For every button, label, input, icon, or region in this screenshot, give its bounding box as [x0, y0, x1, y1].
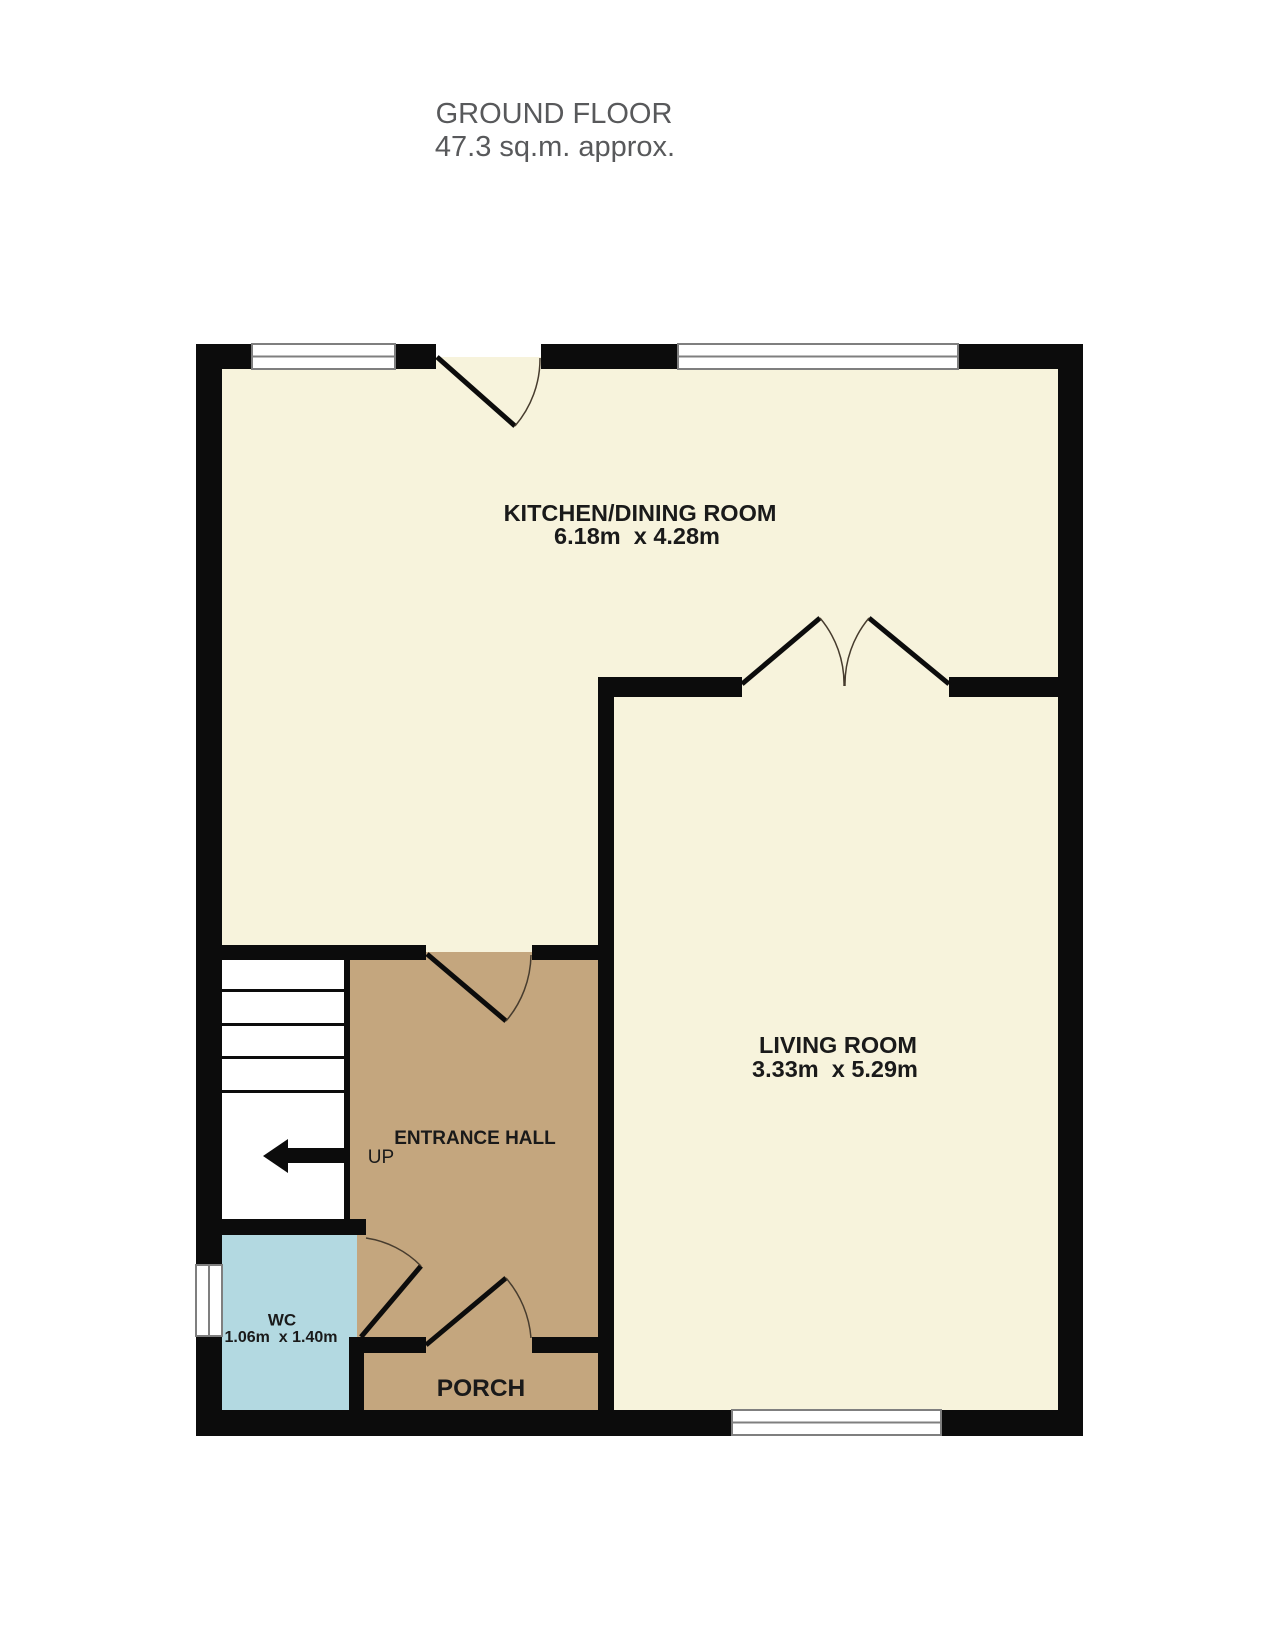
svg-text:GROUND FLOOR: GROUND FLOOR: [436, 98, 673, 130]
svg-text:47.3 sq.m. approx.: 47.3 sq.m. approx.: [435, 131, 675, 163]
svg-text:ENTRANCE HALL: ENTRANCE HALL: [394, 1128, 556, 1149]
svg-text:LIVING ROOM: LIVING ROOM: [759, 1032, 917, 1058]
svg-text:PORCH: PORCH: [437, 1375, 525, 1402]
svg-text:WC: WC: [268, 1311, 296, 1330]
svg-text:UP: UP: [368, 1147, 394, 1168]
svg-text:1.06m x 1.40m: 1.06m x 1.40m: [225, 1329, 338, 1346]
svg-text:6.18m x 4.28m: 6.18m x 4.28m: [554, 523, 720, 549]
svg-text:3.33m x 5.29m: 3.33m x 5.29m: [752, 1056, 918, 1082]
